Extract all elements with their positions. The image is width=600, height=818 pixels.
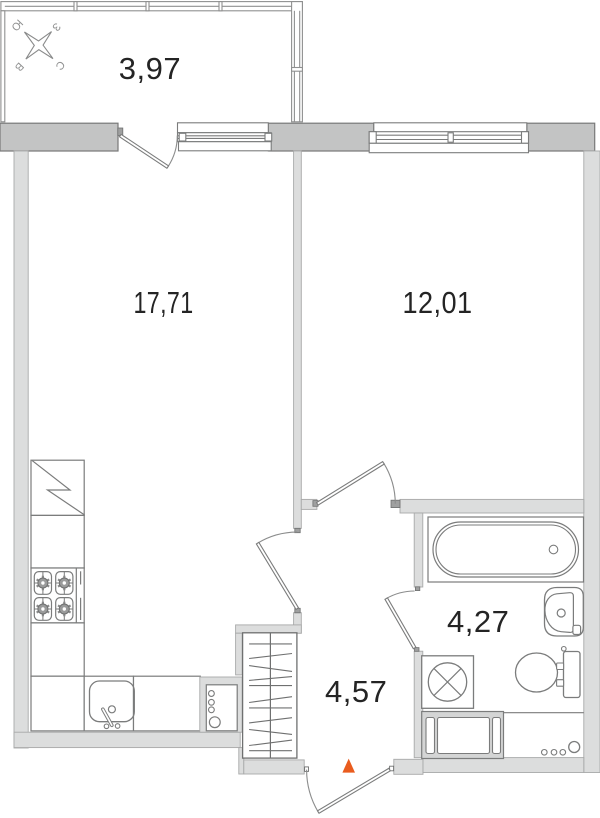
- svg-text:3,97: 3,97: [119, 51, 181, 86]
- svg-text:17,71: 17,71: [134, 285, 194, 320]
- svg-text:4,57: 4,57: [325, 674, 387, 709]
- svg-text:4,27: 4,27: [447, 604, 509, 639]
- svg-text:12,01: 12,01: [403, 285, 473, 320]
